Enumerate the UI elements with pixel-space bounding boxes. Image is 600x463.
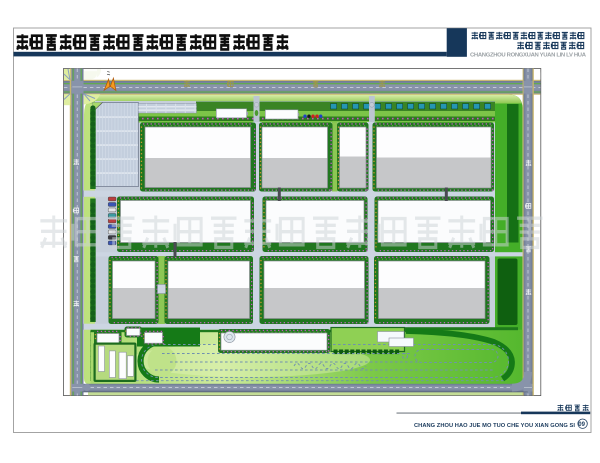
svg-text:09: 09: [578, 422, 585, 428]
svg-text:CHANG ZHOU HAO JUE MO TUO CHE: CHANG ZHOU HAO JUE MO TUO CHE YOU XIAN G…: [414, 423, 575, 429]
svg-text:CHANGZHOU RONGXUAN YUAN LIN LV: CHANGZHOU RONGXUAN YUAN LIN LV HUA: [470, 53, 587, 59]
